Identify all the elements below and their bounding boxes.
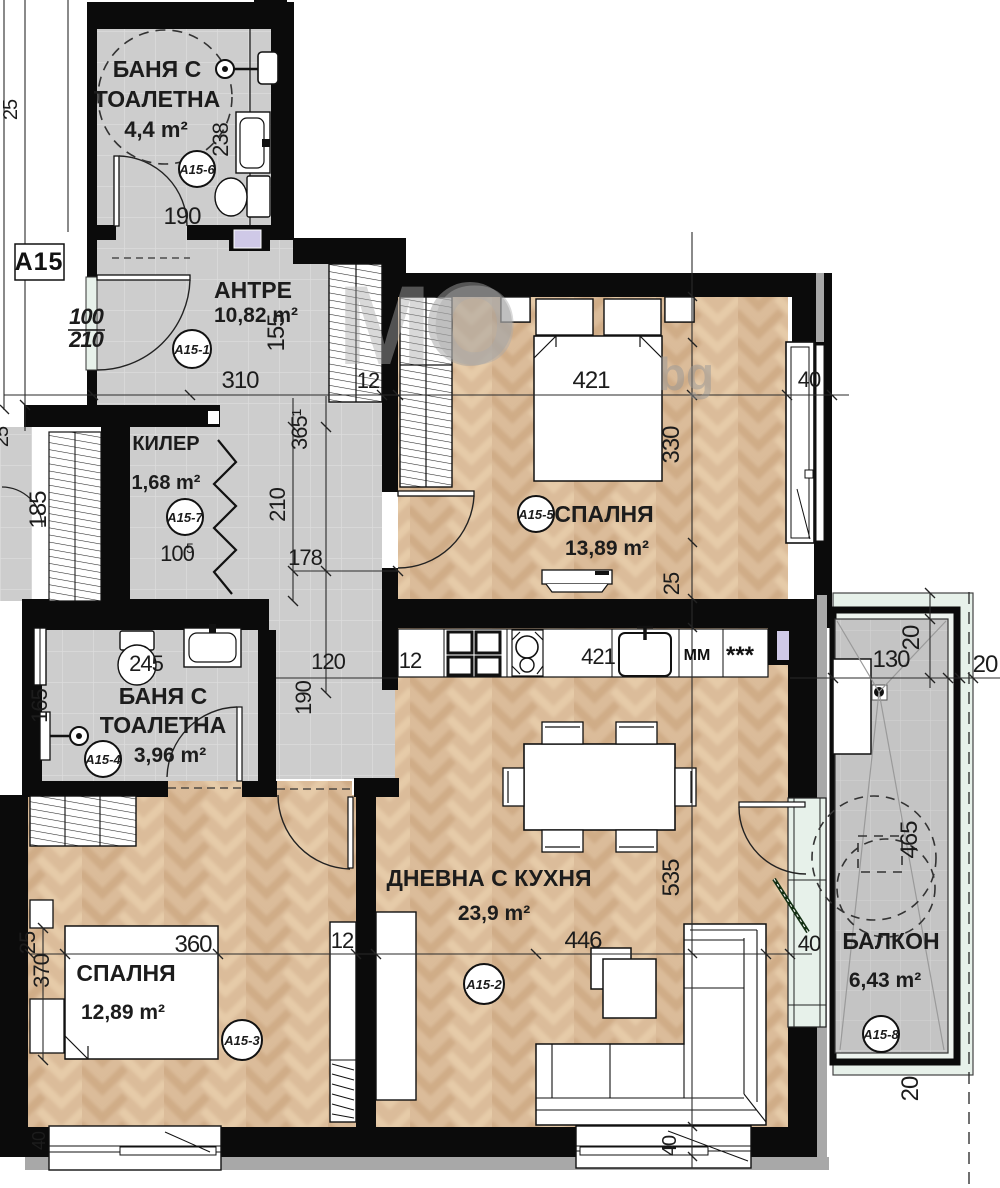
svg-text:А15-8: А15-8 xyxy=(862,1027,899,1042)
svg-text:КИЛЕР: КИЛЕР xyxy=(132,433,199,455)
svg-text:40: 40 xyxy=(659,1135,681,1156)
svg-text:А15-7: А15-7 xyxy=(166,510,203,525)
svg-text:178: 178 xyxy=(288,545,322,570)
svg-text:446: 446 xyxy=(564,927,602,954)
svg-text:СПАЛНЯ: СПАЛНЯ xyxy=(554,501,653,527)
svg-text:535: 535 xyxy=(658,859,685,897)
svg-text:25: 25 xyxy=(15,931,40,954)
svg-text:20: 20 xyxy=(898,625,925,650)
svg-text:185: 185 xyxy=(25,491,52,529)
svg-text:ДНЕВНА С КУХНЯ: ДНЕВНА С КУХНЯ xyxy=(387,865,592,891)
svg-text:6,43 m²: 6,43 m² xyxy=(849,969,921,992)
svg-text:1,68 m²: 1,68 m² xyxy=(132,472,201,494)
svg-text:СПАЛНЯ: СПАЛНЯ xyxy=(76,960,175,986)
svg-text:4,4 m²: 4,4 m² xyxy=(124,117,188,142)
svg-text:ТОАЛЕТНА: ТОАЛЕТНА xyxy=(94,86,220,112)
svg-text:421: 421 xyxy=(581,644,615,669)
svg-text:13,89 m²: 13,89 m² xyxy=(565,537,649,560)
svg-text:465: 465 xyxy=(896,821,923,859)
svg-text:ММ: ММ xyxy=(684,647,711,664)
svg-text:190: 190 xyxy=(163,203,201,230)
svg-text:А15-2: А15-2 xyxy=(465,977,502,992)
svg-text:23,9 m²: 23,9 m² xyxy=(458,902,530,925)
svg-text:12: 12 xyxy=(399,648,422,673)
svg-text:БАЛКОН: БАЛКОН xyxy=(842,928,939,954)
svg-text:12: 12 xyxy=(331,928,354,953)
svg-text:25: 25 xyxy=(659,572,684,595)
svg-text:12,89 m²: 12,89 m² xyxy=(81,1001,165,1024)
svg-text:20: 20 xyxy=(973,651,998,678)
svg-text:БАНЯ С: БАНЯ С xyxy=(113,56,201,82)
svg-text:A15: A15 xyxy=(15,248,64,276)
svg-text:А15-4: А15-4 xyxy=(84,752,121,767)
svg-text:100: 100 xyxy=(69,304,104,329)
svg-text:330: 330 xyxy=(658,426,685,464)
svg-text:155: 155 xyxy=(263,314,290,352)
svg-text:360: 360 xyxy=(174,931,212,958)
svg-text:***: *** xyxy=(726,642,755,669)
svg-text:310: 310 xyxy=(221,367,259,394)
svg-text:А15-6: А15-6 xyxy=(178,162,215,177)
svg-text:421: 421 xyxy=(572,367,610,394)
svg-text:БАНЯ С: БАНЯ С xyxy=(119,683,207,709)
svg-text:20: 20 xyxy=(897,1076,924,1101)
svg-text:ТОАЛЕТНА: ТОАЛЕТНА xyxy=(100,712,226,738)
svg-text:А15-3: А15-3 xyxy=(223,1033,260,1048)
svg-text:40: 40 xyxy=(798,931,821,956)
svg-text:АНТРЕ: АНТРЕ xyxy=(214,277,292,303)
svg-text:190: 190 xyxy=(291,680,316,714)
svg-text:3,96 m²: 3,96 m² xyxy=(134,744,206,767)
svg-text:25: 25 xyxy=(0,426,13,447)
svg-text:bg: bg xyxy=(658,348,714,400)
svg-text:А15-5: А15-5 xyxy=(517,507,554,522)
svg-text:МО: МО xyxy=(338,263,518,388)
svg-text:40: 40 xyxy=(798,367,821,392)
svg-text:165: 165 xyxy=(27,688,52,722)
svg-text:40: 40 xyxy=(29,1131,49,1150)
svg-text:25: 25 xyxy=(0,99,22,120)
svg-text:238: 238 xyxy=(208,122,233,156)
svg-text:А15-1: А15-1 xyxy=(173,342,209,357)
svg-text:120: 120 xyxy=(311,649,345,674)
svg-text:245: 245 xyxy=(129,651,163,676)
svg-text:370: 370 xyxy=(29,953,54,987)
svg-text:210: 210 xyxy=(265,487,290,521)
svg-text:365¹: 365¹ xyxy=(287,409,312,450)
